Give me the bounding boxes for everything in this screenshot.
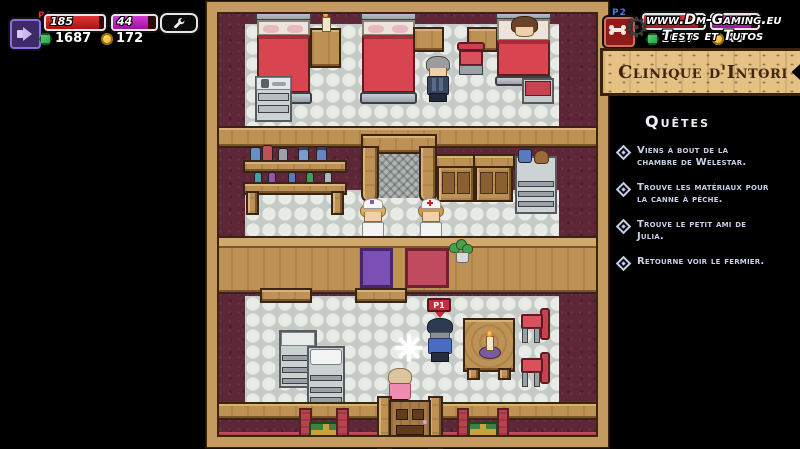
hud-p2: P2 1687 40 ⚙ www.Dm-Gaming.eu Tests et T…: [600, 6, 800, 52]
arch-interior: [373, 150, 425, 198]
counter-top-edge: [215, 238, 604, 248]
diamond-bullet-icon: [616, 145, 632, 161]
watermark-line2: Tests et Tutos: [662, 28, 763, 44]
cart-bar: [311, 388, 341, 392]
wall-cabinet: [439, 156, 473, 200]
npc-legs: [429, 93, 447, 102]
cabinet-counter: [437, 156, 475, 168]
bottle-green: [307, 173, 313, 183]
coin-count: 172: [116, 31, 143, 46]
cabinet-door-panel: [496, 173, 507, 193]
jar-lidded: [317, 147, 326, 162]
jar-gray: [279, 149, 287, 162]
mana-bar: 44: [111, 14, 158, 31]
red-bench: [522, 78, 554, 104]
chair-legs: [523, 373, 527, 386]
pillow: [263, 25, 279, 33]
pillow: [368, 25, 384, 33]
megaphone-glyph-cone: [23, 27, 32, 41]
wall-banner: [336, 408, 349, 444]
patient-face: [515, 27, 534, 37]
location-sign: Clinique d'Intori: [600, 48, 800, 96]
chair-seat: [459, 50, 483, 66]
potion-shelf: [245, 146, 345, 214]
arch-column: [363, 148, 377, 200]
health-bar: 185: [44, 14, 106, 31]
hud-p1: P1 185 44 1687 172: [8, 8, 198, 50]
bench-cushion: [526, 82, 550, 95]
watermark-line1: www.Dm-Gaming.eu: [646, 12, 782, 28]
player-character: P1: [425, 298, 453, 364]
cabinet-item-tray: [272, 82, 286, 86]
supply-cart: [515, 148, 557, 214]
settings-button[interactable]: [160, 13, 198, 33]
cart-shelf-bar: [519, 182, 553, 186]
door-carving: [397, 410, 407, 419]
nurse-hat-cross: [427, 202, 433, 204]
bed-occupied: [495, 10, 552, 86]
nurse-hat-mark: [370, 200, 374, 204]
player-overhead-tag: P1: [427, 298, 451, 312]
candle-body: [322, 17, 331, 32]
npc-strap: [432, 78, 436, 91]
jar-lidded: [299, 147, 308, 162]
potted-plant: [450, 240, 472, 264]
bed-footboard: [360, 92, 417, 104]
jar-blue: [251, 148, 260, 162]
cart-basin: [311, 350, 341, 364]
table-leg: [500, 370, 509, 378]
cabinet-door-panel: [481, 173, 492, 193]
quest-text: Trouve les matériaux pour la canne à pêc…: [637, 182, 769, 206]
quest-item: Trouve le petit ami de Julia.: [618, 219, 800, 243]
cabinet-door-panel: [458, 173, 469, 193]
chair-legs: [535, 373, 539, 386]
shelf-board: [245, 184, 345, 193]
bed-pillows: [257, 20, 310, 36]
quest-panel-title: Quêtes: [645, 112, 800, 131]
waiting-chair: [519, 352, 552, 390]
quest-item: Viens à bout de la chambre de Welestar.: [618, 145, 800, 169]
medical-cart: [307, 346, 345, 404]
chair-legs: [535, 329, 539, 342]
plant-pot: [456, 252, 469, 263]
door-jamb: [430, 398, 441, 448]
game-viewport[interactable]: P1: [205, 0, 610, 449]
door-panel: [389, 400, 431, 448]
quest-item: Trouve les matériaux pour la canne à pêc…: [618, 182, 800, 206]
chair-legs: [523, 329, 527, 342]
table-leg: [469, 370, 478, 378]
diamond-bullet-icon: [616, 219, 632, 235]
bed: [360, 10, 417, 104]
medical-cabinet: [255, 76, 292, 122]
npc-nurse-1: [359, 198, 385, 242]
floor-rug: [468, 422, 498, 442]
wall-banner: [497, 408, 509, 444]
bottle-purple: [269, 173, 275, 183]
coin-icon: [101, 33, 113, 45]
shelf-leg: [248, 193, 257, 213]
door-carving: [413, 410, 423, 419]
red-chair: [457, 42, 485, 76]
quest-text: Viens à bout de la chambre de Welestar.: [637, 145, 769, 169]
pillow: [392, 25, 408, 33]
npc-nurse-2: [417, 198, 443, 242]
cart-item-blue: [519, 150, 531, 162]
chair-seat: [521, 358, 543, 373]
npc-gray-visitor: [425, 56, 449, 102]
health-value: 185: [50, 15, 73, 28]
diamond-bullet-icon: [616, 256, 632, 272]
pillow: [287, 25, 303, 33]
cart-shelf-bar: [519, 202, 553, 206]
wall-cabinet: [477, 156, 511, 200]
candle-flame: [323, 10, 328, 17]
waiting-chair: [519, 308, 552, 346]
table-candle-flame: [487, 330, 492, 337]
cart-shelf-bar: [519, 192, 553, 196]
cart-bar: [311, 376, 341, 380]
quest-text: Retourne voir le fermier.: [637, 256, 769, 269]
player-tag-text: P1: [433, 301, 444, 310]
gem-count: 1687: [55, 31, 91, 46]
npc-strap: [439, 78, 443, 91]
bed-blanket: [362, 35, 415, 93]
arch-column: [421, 148, 435, 200]
door-knob: [423, 420, 427, 424]
shelf-board: [245, 162, 345, 171]
quest-panel: Quêtes Viens à bout de la chambre de Wel…: [618, 112, 800, 282]
bottle-blue: [289, 173, 295, 183]
wrench-icon: [173, 17, 186, 30]
nurse-face: [422, 212, 440, 222]
cabinet-drawer: [259, 94, 288, 100]
location-sign-title: Clinique d'Intori: [618, 62, 788, 83]
diamond-bullet-icon: [616, 182, 632, 198]
side-table: [415, 29, 442, 50]
cart-tray: [282, 333, 314, 345]
cabinet-drawer: [259, 106, 288, 112]
bottle-teal: [255, 173, 261, 183]
counter-panel-red: [405, 248, 449, 288]
bed-blanket: [497, 40, 550, 76]
mana-value: 44: [117, 15, 132, 28]
cart-item-sack: [535, 151, 548, 163]
cabinet-counter: [475, 156, 513, 168]
cart-bar: [311, 398, 341, 402]
table-candle: [486, 336, 494, 351]
nurse-face: [364, 212, 382, 222]
exit-door: [379, 398, 441, 448]
sparkle-effect: [395, 334, 423, 362]
player-legs: [431, 352, 449, 362]
chair-seat: [521, 314, 543, 329]
counter-stool: [357, 290, 405, 301]
cabinet-door-panel: [443, 173, 454, 193]
candle: [320, 10, 330, 32]
counter-panel-purple: [360, 248, 393, 288]
jar-red: [263, 146, 272, 162]
nightstand: [312, 30, 339, 66]
door-carving: [397, 426, 423, 434]
cabinet-item-kettle: [261, 79, 269, 88]
bone-glyph-knob: [609, 30, 614, 35]
bottle-gray: [325, 173, 331, 183]
bed-pillows: [362, 20, 415, 36]
chair-legs: [460, 66, 482, 74]
quest-item: Retourne voir le fermier.: [618, 256, 800, 269]
doorway-arch: [363, 136, 435, 200]
quest-text: Trouve le petit ami de Julia.: [637, 219, 769, 243]
exam-table: [465, 320, 513, 378]
game-screen: P1: [0, 0, 800, 449]
megaphone-icon: [10, 19, 41, 49]
counter-stool: [262, 290, 310, 301]
shelf-leg: [333, 193, 342, 213]
